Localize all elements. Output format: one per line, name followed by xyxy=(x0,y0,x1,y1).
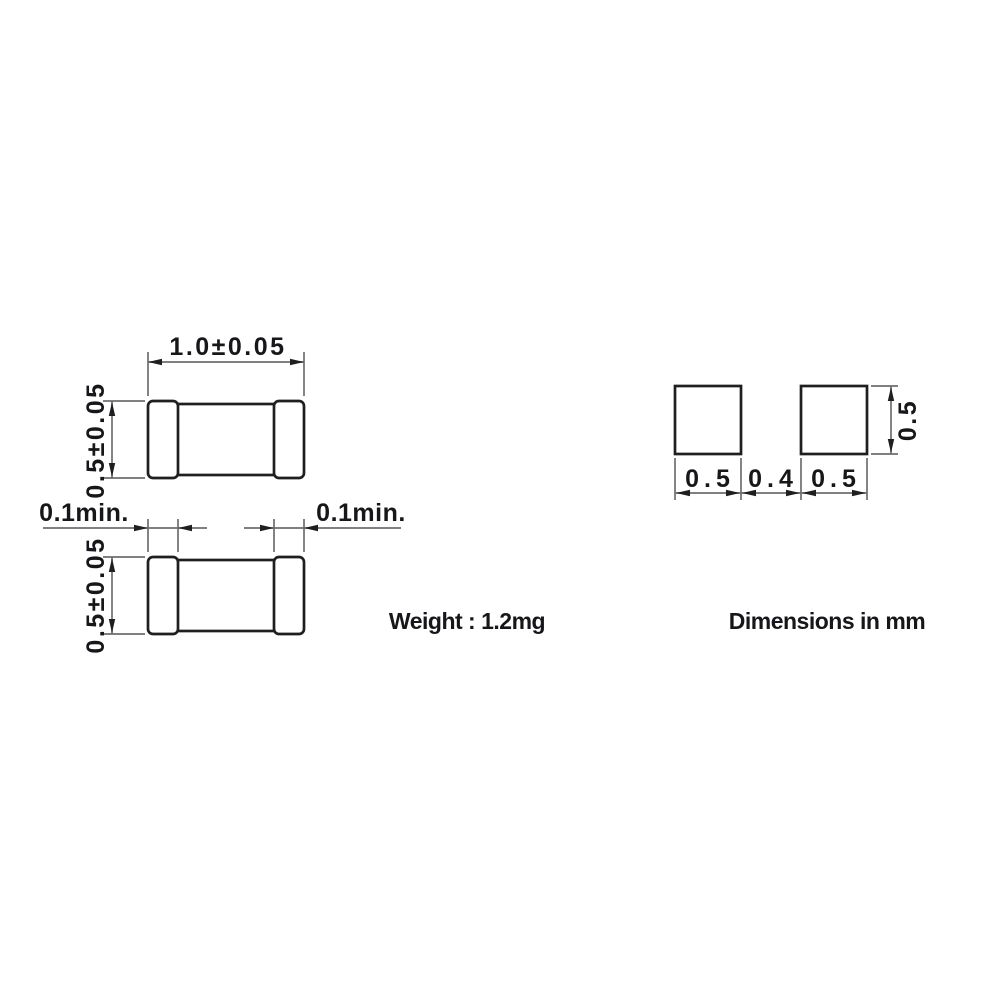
right-pad-width-label: 0.5 xyxy=(811,465,861,493)
dimension-terminal-left: 0.1min. xyxy=(39,499,207,552)
right-terminal-cap xyxy=(274,401,304,478)
arrowhead-right xyxy=(260,525,274,531)
units-note: Dimensions in mm xyxy=(729,608,926,634)
dimension-bottom-height: 0.5±0.05 xyxy=(82,536,145,653)
dimension-pad-widths: 0.5 0.4 0.5 xyxy=(675,458,867,500)
right-pad xyxy=(801,386,867,454)
dimension-terminal-right: 0.1min. xyxy=(244,499,406,552)
component-bottom-view xyxy=(148,557,304,634)
left-pad-width-label: 0.5 xyxy=(685,465,735,493)
dimension-pad-height: 0.5 xyxy=(871,386,922,454)
terminal-right-label: 0.1min. xyxy=(316,499,406,527)
pad-gap-label: 0.4 xyxy=(748,465,798,493)
dimension-top-height: 0.5±0.05 xyxy=(82,381,145,498)
dimension-top-length: 1.0±0.05 xyxy=(148,333,304,396)
bottom-height-label: 0.5±0.05 xyxy=(82,536,110,653)
component-body xyxy=(177,404,275,475)
land-pattern xyxy=(675,386,867,454)
arrowhead-left xyxy=(304,525,318,531)
left-terminal-cap xyxy=(148,401,178,478)
arrowhead-right xyxy=(290,359,304,365)
arrowhead-left xyxy=(178,525,192,531)
arrowhead-left xyxy=(148,359,162,365)
terminal-left-label: 0.1min. xyxy=(39,499,129,527)
left-terminal-cap xyxy=(148,557,178,634)
top-height-label: 0.5±0.05 xyxy=(82,381,110,498)
technical-drawing: 1.0±0.05 0.5±0.05 0.1min. 0.1min. xyxy=(0,0,1000,1000)
left-pad xyxy=(675,386,741,454)
right-terminal-cap xyxy=(274,557,304,634)
weight-note: Weight : 1.2mg xyxy=(389,608,545,634)
arrowhead-right xyxy=(134,525,148,531)
top-length-label: 1.0±0.05 xyxy=(169,333,286,361)
drawing-canvas: 1.0±0.05 0.5±0.05 0.1min. 0.1min. xyxy=(0,0,1000,1000)
component-body xyxy=(177,560,275,631)
pad-height-label: 0.5 xyxy=(894,399,922,441)
component-top-view xyxy=(148,401,304,478)
